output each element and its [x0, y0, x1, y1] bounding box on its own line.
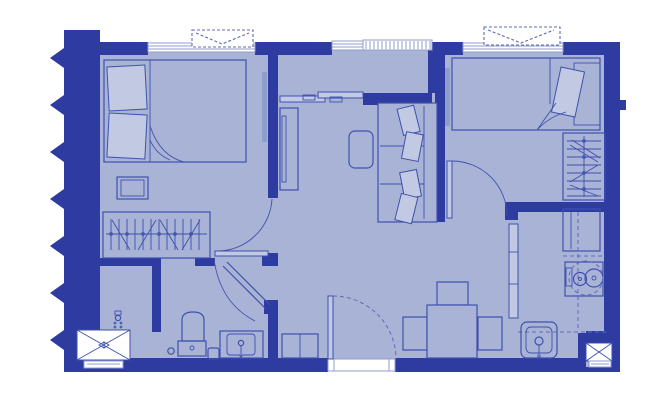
windows	[148, 27, 563, 52]
door-leaf	[447, 161, 452, 218]
door-leaf	[328, 296, 333, 359]
wall-top-1	[100, 42, 148, 55]
wall-shower-partition	[152, 258, 161, 332]
wall-bath-top-a	[88, 258, 152, 266]
wall-stub-hall-2	[264, 300, 278, 314]
ac-indoor-unit	[445, 68, 450, 126]
dining-table	[427, 305, 477, 358]
wall-bottom-right	[395, 358, 586, 372]
wall-bath-top-b	[195, 258, 215, 266]
wall-shaft-top	[586, 331, 612, 343]
wall-top-2	[255, 42, 332, 55]
shower-area	[77, 330, 130, 368]
entry-threshold	[328, 359, 395, 371]
louver-railing-window	[363, 40, 432, 50]
tall-cabinet	[509, 224, 518, 318]
wall-shaft-bottom	[586, 367, 610, 372]
service-shaft-kitchen	[586, 343, 612, 367]
sofa	[378, 103, 437, 224]
ac-outdoor-unit-2	[484, 27, 560, 45]
pillow	[107, 65, 147, 111]
ac-outdoor-unit-1	[192, 30, 253, 47]
door-leaf	[215, 251, 268, 256]
wall-bed1-living	[268, 55, 278, 198]
pillow	[107, 113, 147, 159]
ac-indoor-unit	[262, 72, 267, 142]
floor-plan-page	[0, 0, 645, 414]
window-balcony	[332, 41, 363, 50]
wall-right-step	[620, 100, 626, 110]
sawtooth-party-wall	[50, 30, 100, 372]
floor-plan-drawing	[0, 0, 645, 414]
wall-hall-bath	[268, 312, 278, 358]
